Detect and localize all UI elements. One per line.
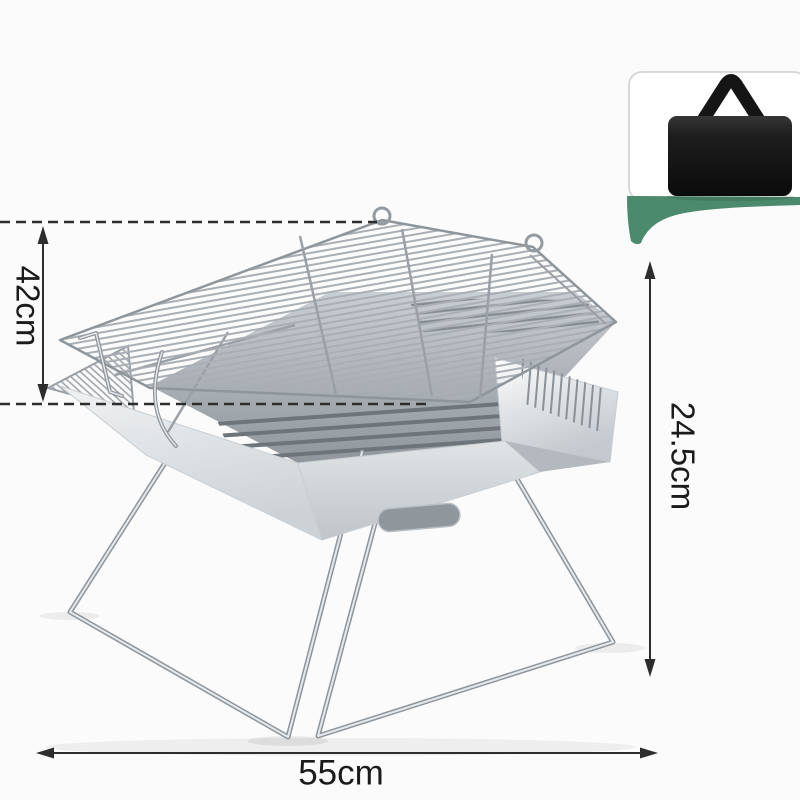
grill-illustration <box>40 208 645 756</box>
grill-illustration-canvas <box>0 0 800 800</box>
grate-width-label: 42cm <box>12 266 45 347</box>
body-height-arrow <box>645 261 656 677</box>
green-swoosh <box>627 196 800 244</box>
carry-bag-inset <box>627 72 800 244</box>
body-height-label: 24.5cm <box>667 402 700 510</box>
ground-shadow <box>40 612 645 756</box>
base-width-label: 55cm <box>298 756 384 791</box>
bag-body <box>668 116 792 196</box>
product-dimension-image: 42cm 24.5cm 55cm <box>0 0 800 800</box>
